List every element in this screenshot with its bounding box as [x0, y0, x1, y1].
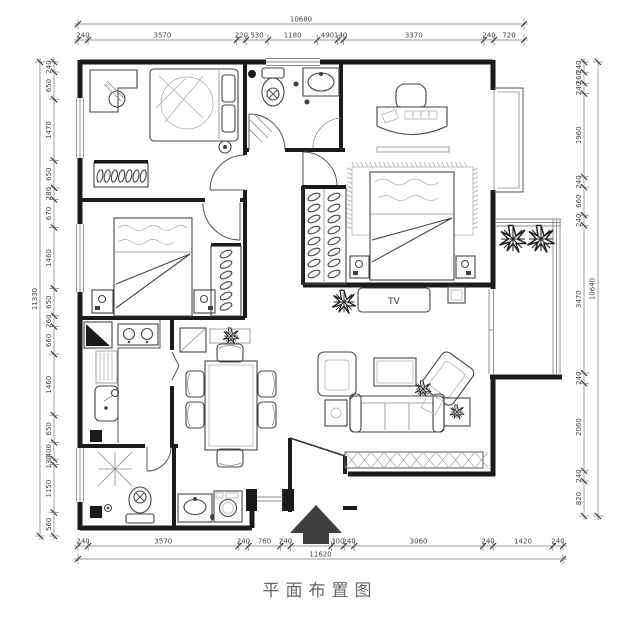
dining-chair — [186, 371, 204, 397]
svg-text:240: 240 — [575, 371, 583, 384]
svg-text:530: 530 — [250, 32, 263, 40]
bathroom2-door — [147, 447, 171, 471]
dimension-chain-left: 2406501470650280670146065026066014606504… — [31, 58, 59, 540]
dimension-chain-right: 2402602401960240660240347024020602408201… — [575, 58, 603, 520]
shower-area — [98, 452, 132, 486]
corner-unit — [84, 322, 112, 348]
tv-cabinet: TV — [358, 288, 430, 312]
room-bedroom-topleft — [90, 69, 238, 187]
dimension-chain-top: 24035702205301180490140337024072010680 — [74, 16, 528, 46]
svg-text:650: 650 — [45, 422, 53, 435]
svg-text:1460: 1460 — [45, 249, 53, 267]
svg-text:11330: 11330 — [31, 288, 39, 310]
plant-icon — [500, 226, 527, 253]
shower-spray — [248, 114, 272, 142]
svg-text:3370: 3370 — [405, 32, 423, 40]
kitchen-sink — [95, 386, 119, 421]
side-table — [444, 398, 470, 426]
floor-plan-svg: TV 2403570220530118049014033702407201068… — [0, 0, 640, 617]
bedside-decor — [219, 141, 231, 153]
svg-text:280: 280 — [45, 187, 53, 200]
svg-text:660: 660 — [575, 194, 583, 207]
svg-text:650: 650 — [45, 168, 53, 181]
bed — [150, 69, 238, 141]
room-bathroom-top — [248, 68, 339, 142]
drawing-title: 平面布置图 — [263, 581, 378, 601]
dining-chair — [217, 449, 243, 467]
plant-icon — [415, 381, 431, 397]
dish-rack — [96, 351, 117, 383]
svg-text:1180: 1180 — [284, 32, 302, 40]
svg-text:240: 240 — [342, 538, 355, 546]
shower-screen-arc — [313, 118, 341, 148]
svg-text:10680: 10680 — [290, 16, 312, 24]
svg-text:720: 720 — [502, 32, 515, 40]
room-bathroom2 — [98, 452, 154, 523]
room-utility — [178, 491, 242, 522]
pipe-shaft — [90, 430, 102, 442]
svg-text:240: 240 — [481, 538, 494, 546]
svg-text:650: 650 — [45, 79, 53, 92]
toilet — [126, 487, 154, 523]
corner-desk — [90, 70, 137, 112]
dining-chair — [217, 344, 243, 362]
dining-chair — [186, 402, 204, 428]
dining-table — [205, 361, 257, 450]
svg-text:3570: 3570 — [154, 538, 172, 546]
porch-pier-right — [282, 489, 294, 511]
plant-icon — [528, 226, 555, 253]
svg-text:650: 650 — [45, 295, 53, 308]
tv-label: TV — [387, 297, 400, 307]
bed — [114, 218, 192, 316]
svg-text:240: 240 — [575, 82, 583, 95]
console-cabinet — [180, 328, 206, 352]
kitchen-folding-door — [172, 352, 179, 380]
room-balcony — [500, 226, 555, 253]
bedroom1-door — [210, 155, 245, 190]
side-table — [325, 400, 347, 426]
svg-text:1150: 1150 — [45, 480, 53, 498]
svg-text:240: 240 — [575, 175, 583, 188]
dining-chair — [258, 402, 276, 428]
desk-chair — [396, 84, 426, 110]
bed — [370, 172, 454, 280]
dining-chair — [258, 371, 276, 397]
stool — [448, 287, 465, 303]
curved-desk — [377, 107, 447, 135]
sofa — [350, 393, 444, 432]
cooktop — [118, 324, 158, 345]
porch-window — [257, 497, 283, 501]
svg-text:11620: 11620 — [309, 551, 331, 559]
toilet — [262, 68, 284, 106]
coffee-table — [374, 358, 416, 386]
nightstand — [456, 256, 475, 278]
svg-text:240: 240 — [575, 469, 583, 482]
armchair — [318, 352, 356, 396]
bay-window — [493, 88, 523, 192]
svg-text:760: 760 — [258, 538, 271, 546]
svg-text:820: 820 — [575, 492, 583, 505]
towel-ring — [305, 100, 310, 105]
balcony-sliding-door — [489, 289, 494, 374]
vanity-sink — [178, 494, 212, 522]
svg-text:560: 560 — [45, 518, 53, 531]
svg-text:3470: 3470 — [575, 290, 583, 308]
porch-pier-left — [246, 489, 257, 511]
plant-icon — [223, 328, 239, 344]
svg-text:2060: 2060 — [575, 418, 583, 436]
bathroom-top-door — [249, 114, 285, 150]
svg-text:490: 490 — [321, 32, 334, 40]
room-living: TV — [318, 287, 488, 468]
svg-text:1470: 1470 — [45, 121, 53, 139]
svg-text:240: 240 — [76, 538, 89, 546]
floor-drain — [248, 70, 256, 78]
plant-icon — [332, 290, 355, 313]
nightstand — [194, 290, 215, 313]
svg-text:1420: 1420 — [514, 538, 532, 546]
svg-text:970: 970 — [304, 538, 317, 546]
washing-machine — [214, 491, 242, 522]
svg-text:670: 670 — [45, 207, 53, 220]
master-bedroom-door — [303, 152, 337, 186]
svg-text:1960: 1960 — [575, 126, 583, 144]
counter-edge — [118, 320, 160, 443]
svg-text:3570: 3570 — [153, 32, 171, 40]
sink — [303, 68, 339, 96]
floor-plan-canvas: TV 2403570220530118049014033702407201068… — [0, 0, 640, 617]
wardrobe — [94, 160, 148, 187]
room-kitchen — [84, 320, 160, 443]
nightstand — [350, 256, 369, 278]
svg-text:240: 240 — [279, 538, 292, 546]
nightstand — [92, 290, 113, 313]
plant-icon — [450, 405, 464, 419]
svg-text:3060: 3060 — [410, 538, 428, 546]
svg-text:660: 660 — [45, 334, 53, 347]
svg-text:1460: 1460 — [45, 376, 53, 394]
svg-text:10640: 10640 — [589, 278, 597, 300]
pipe-shaft — [90, 506, 102, 518]
svg-text:240: 240 — [551, 538, 564, 546]
towel-ring — [294, 82, 299, 87]
svg-text:240: 240 — [237, 538, 250, 546]
svg-text:240: 240 — [575, 214, 583, 227]
desk-shelf — [377, 147, 449, 152]
plant-shelf — [210, 328, 250, 344]
bedroom2-door — [203, 203, 240, 240]
entry-door-leaf — [290, 438, 345, 456]
room-dining — [180, 328, 276, 467]
shoe-cabinet — [345, 452, 488, 468]
svg-text:260: 260 — [45, 314, 53, 327]
